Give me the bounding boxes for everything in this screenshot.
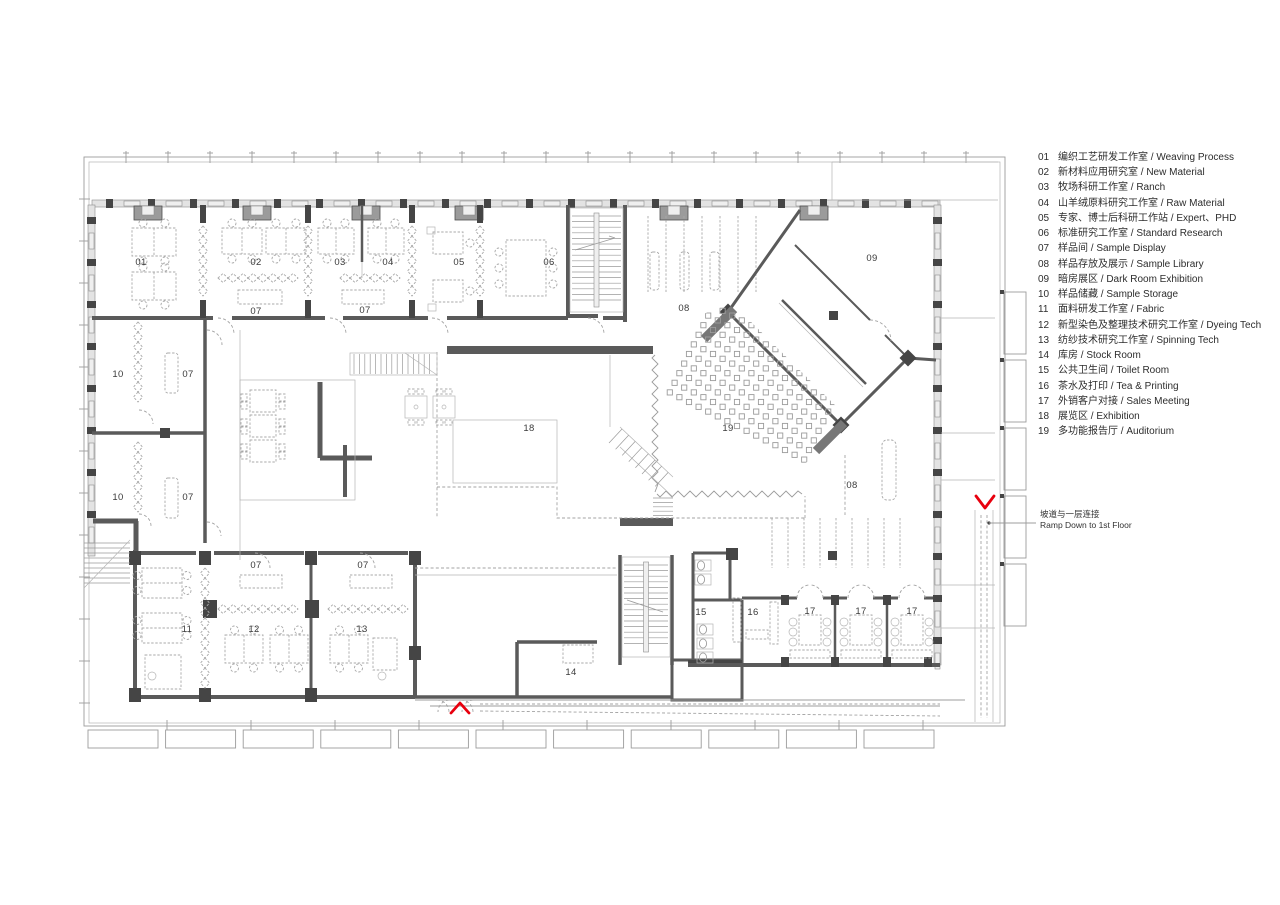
ramp-callout-en: Ramp Down to 1st Floor bbox=[1040, 520, 1132, 531]
legend-label: 纺纱技术研究工作室 / Spinning Tech bbox=[1058, 333, 1219, 348]
legend-label: 库房 / Stock Room bbox=[1058, 348, 1141, 363]
room-label-18: 18 bbox=[523, 423, 534, 434]
facade-panels bbox=[88, 290, 1026, 748]
legend-number: 13 bbox=[1038, 333, 1058, 348]
legend-number: 16 bbox=[1038, 379, 1058, 394]
room-label-13: 13 bbox=[356, 624, 367, 635]
legend-label: 展览区 / Exhibition bbox=[1058, 409, 1140, 424]
room-label-15: 15 bbox=[695, 607, 706, 618]
ramp-callout-zh: 坡道与一层连接 bbox=[1040, 509, 1132, 520]
legend-label: 茶水及打印 / Tea & Printing bbox=[1058, 379, 1179, 394]
legend-item-10: 10样品储藏 / Sample Storage bbox=[1038, 287, 1266, 302]
legend-number: 05 bbox=[1038, 211, 1058, 226]
legend-label: 暗房展区 / Dark Room Exhibition bbox=[1058, 272, 1203, 287]
legend-number: 15 bbox=[1038, 363, 1058, 378]
room-label-08: 08 bbox=[846, 480, 857, 491]
room-label-07: 07 bbox=[182, 369, 193, 380]
floor-plan-drawing: 0102030405060707080910071007181908070711… bbox=[0, 0, 1280, 905]
red-direction-markers bbox=[451, 496, 994, 713]
legend-label: 新型染色及整理技术研究工作室 / Dyeing Tech bbox=[1058, 318, 1261, 333]
room-label-01: 01 bbox=[135, 257, 146, 268]
room-label-06: 06 bbox=[543, 257, 554, 268]
legend-number: 10 bbox=[1038, 287, 1058, 302]
room-label-07: 07 bbox=[250, 560, 261, 571]
legend-item-11: 11面料研发工作室 / Fabric bbox=[1038, 302, 1266, 317]
room-label-07: 07 bbox=[357, 560, 368, 571]
room-label-07: 07 bbox=[250, 306, 261, 317]
legend-item-17: 17外销客户对接 / Sales Meeting bbox=[1038, 394, 1266, 409]
room-label-14: 14 bbox=[565, 667, 576, 678]
legend-number: 04 bbox=[1038, 196, 1058, 211]
auditorium-room bbox=[667, 210, 936, 462]
legend-item-15: 15公共卫生间 / Toilet Room bbox=[1038, 363, 1266, 378]
legend-number: 02 bbox=[1038, 165, 1058, 180]
legend-label: 多功能报告厅 / Auditorium bbox=[1058, 424, 1174, 439]
legend-item-04: 04山羊绒原料研究工作室 / Raw Material bbox=[1038, 196, 1266, 211]
entrance-chevron-up bbox=[451, 703, 469, 713]
legend-label: 山羊绒原料研究工作室 / Raw Material bbox=[1058, 196, 1225, 211]
room-label-04: 04 bbox=[382, 257, 393, 268]
room-label-09: 09 bbox=[866, 253, 877, 264]
room-label-10: 10 bbox=[112, 369, 123, 380]
room-label-12: 12 bbox=[248, 624, 259, 635]
legend-label: 样品储藏 / Sample Storage bbox=[1058, 287, 1178, 302]
legend-number: 06 bbox=[1038, 226, 1058, 241]
legend-item-12: 12新型染色及整理技术研究工作室 / Dyeing Tech bbox=[1038, 318, 1266, 333]
legend-label: 新材料应用研究室 / New Material bbox=[1058, 165, 1205, 180]
legend-item-13: 13纺纱技术研究工作室 / Spinning Tech bbox=[1038, 333, 1266, 348]
legend-label: 牧场科研工作室 / Ranch bbox=[1058, 180, 1165, 195]
floor-plan-sheet: { "legend": { "items": [ {"no":"01","lab… bbox=[0, 0, 1280, 905]
ramp-callout-leader bbox=[987, 521, 1036, 524]
ramp-chevron-down bbox=[976, 496, 994, 508]
legend-item-03: 03牧场科研工作室 / Ranch bbox=[1038, 180, 1266, 195]
legend-item-16: 16茶水及打印 / Tea & Printing bbox=[1038, 379, 1266, 394]
legend-number: 03 bbox=[1038, 180, 1058, 195]
legend-label: 样品存放及展示 / Sample Library bbox=[1058, 257, 1204, 272]
room-label-05: 05 bbox=[453, 257, 464, 268]
legend-label: 公共卫生间 / Toilet Room bbox=[1058, 363, 1169, 378]
room-label-17: 17 bbox=[855, 606, 866, 617]
legend-item-19: 19多功能报告厅 / Auditorium bbox=[1038, 424, 1266, 439]
room-label-07: 07 bbox=[359, 305, 370, 316]
legend-label: 专家、博士后科研工作站 / Expert、PHD bbox=[1058, 211, 1236, 226]
legend-item-08: 08样品存放及展示 / Sample Library bbox=[1038, 257, 1266, 272]
legend-item-01: 01编织工艺研发工作室 / Weaving Process bbox=[1038, 150, 1266, 165]
legend-item-02: 02新材料应用研究室 / New Material bbox=[1038, 165, 1266, 180]
legend-item-07: 07样品间 / Sample Display bbox=[1038, 241, 1266, 256]
legend-number: 19 bbox=[1038, 424, 1058, 439]
furniture bbox=[132, 216, 933, 712]
room-label-17: 17 bbox=[804, 606, 815, 617]
room-label-16: 16 bbox=[747, 607, 758, 618]
legend: 01编织工艺研发工作室 / Weaving Process02新材料应用研究室 … bbox=[1038, 150, 1266, 439]
room-label-10: 10 bbox=[112, 492, 123, 503]
legend-label: 标准研究工作室 / Standard Research bbox=[1058, 226, 1223, 241]
legend-number: 17 bbox=[1038, 394, 1058, 409]
room-label-08: 08 bbox=[678, 303, 689, 314]
legend-label: 样品间 / Sample Display bbox=[1058, 241, 1166, 256]
legend-label: 编织工艺研发工作室 / Weaving Process bbox=[1058, 150, 1234, 165]
room-label-11: 11 bbox=[182, 624, 193, 635]
legend-number: 09 bbox=[1038, 272, 1058, 287]
legend-item-18: 18展览区 / Exhibition bbox=[1038, 409, 1266, 424]
legend-item-09: 09暗房展区 / Dark Room Exhibition bbox=[1038, 272, 1266, 287]
legend-label: 面料研发工作室 / Fabric bbox=[1058, 302, 1164, 317]
legend-label: 外销客户对接 / Sales Meeting bbox=[1058, 394, 1190, 409]
legend-number: 08 bbox=[1038, 257, 1058, 272]
legend-item-14: 14库房 / Stock Room bbox=[1038, 348, 1266, 363]
legend-number: 18 bbox=[1038, 409, 1058, 424]
room-label-17: 17 bbox=[906, 606, 917, 617]
room-label-03: 03 bbox=[334, 257, 345, 268]
room-label-02: 02 bbox=[250, 257, 261, 268]
room-label-19: 19 bbox=[722, 423, 733, 434]
room-label-07: 07 bbox=[182, 492, 193, 503]
legend-number: 01 bbox=[1038, 150, 1058, 165]
ramp-callout: 坡道与一层连接 Ramp Down to 1st Floor bbox=[1040, 509, 1132, 531]
legend-item-06: 06标准研究工作室 / Standard Research bbox=[1038, 226, 1266, 241]
legend-number: 12 bbox=[1038, 318, 1058, 333]
legend-number: 07 bbox=[1038, 241, 1058, 256]
legend-number: 14 bbox=[1038, 348, 1058, 363]
legend-number: 11 bbox=[1038, 302, 1058, 317]
legend-item-05: 05专家、博士后科研工作站 / Expert、PHD bbox=[1038, 211, 1266, 226]
